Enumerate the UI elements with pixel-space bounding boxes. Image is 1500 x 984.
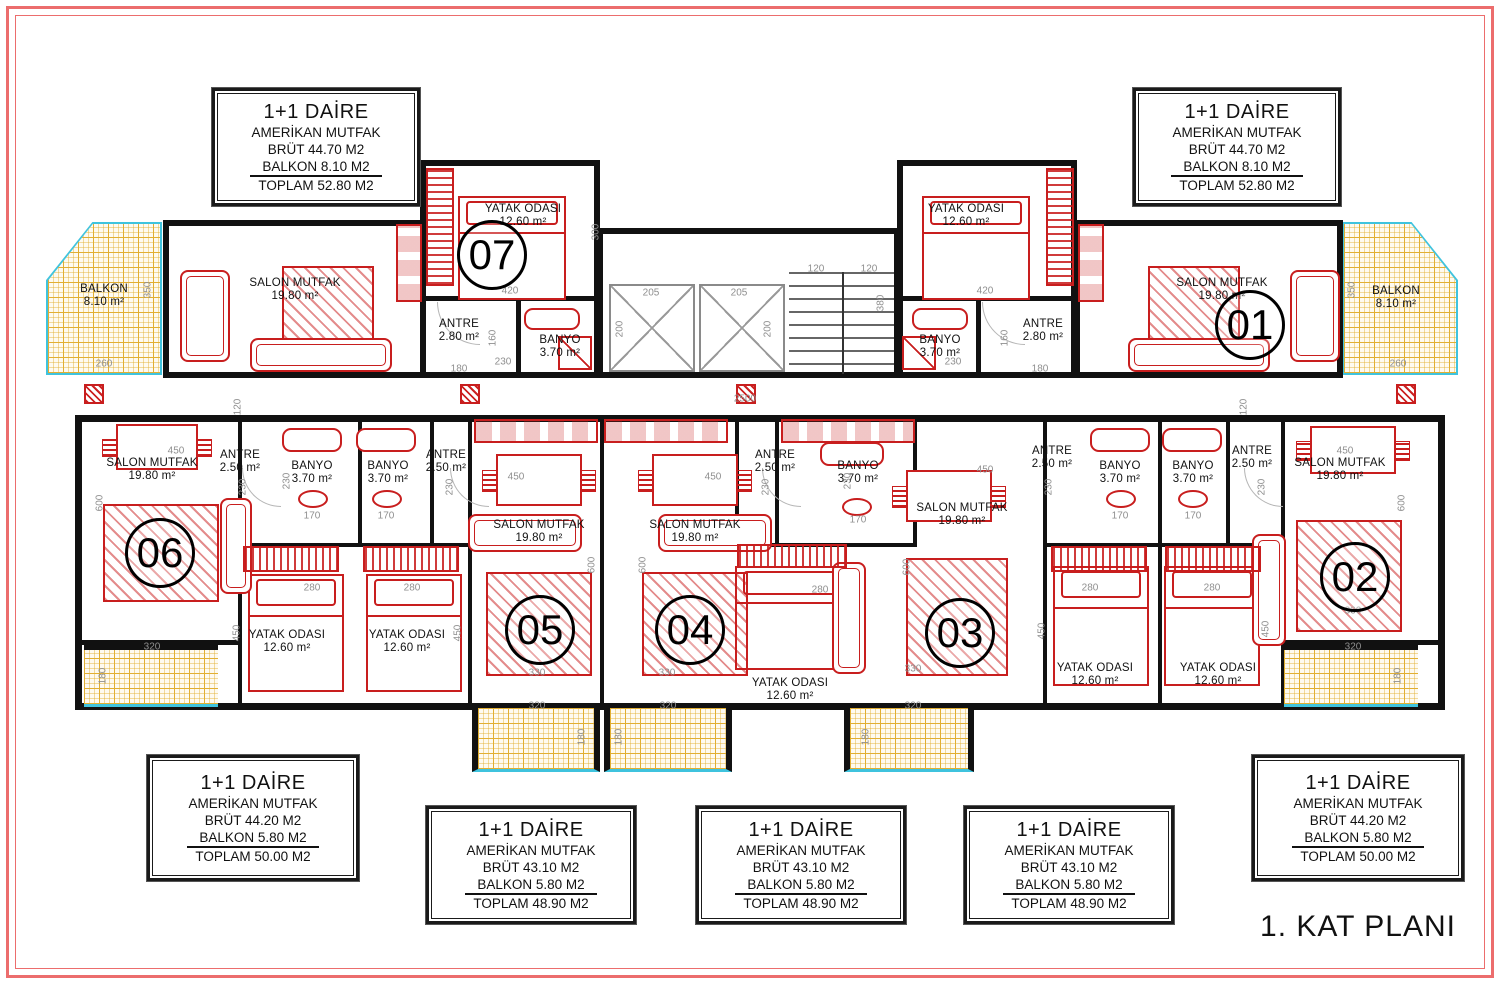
room-label: YATAK ODASI12.60 m²: [752, 677, 828, 703]
dimension-label: 120: [808, 264, 825, 275]
dimension-label: 170: [378, 511, 395, 522]
room-label: BANYO3.70 m²: [367, 460, 408, 486]
bathtub-fixture: [1162, 428, 1222, 452]
dimension-label: 280: [304, 583, 321, 594]
dimension-label: 330: [659, 668, 676, 679]
dimension-label: 200: [763, 321, 774, 338]
room-label: ANTRE2.80 m²: [439, 318, 479, 344]
room-label: ANTRE2.50 m²: [426, 449, 466, 475]
room-label: SALON MUTFAK19.80 m²: [493, 519, 584, 545]
bathtub-fixture: [524, 308, 580, 330]
dimension-label: 180: [98, 668, 109, 685]
sofa-furniture: [250, 338, 392, 372]
room-label: ANTRE2.80 m²: [1023, 318, 1063, 344]
dimension-label: 170: [1112, 511, 1129, 522]
dimension-label: 180: [861, 729, 872, 746]
column-marker: [84, 384, 104, 404]
dimension-label: 320: [144, 642, 161, 653]
wardrobe-furniture: [1046, 168, 1074, 286]
dimension-label: 300: [591, 224, 602, 241]
dimension-label: 120: [233, 399, 244, 416]
info-box-brut: BRÜT 44.70 M2: [1189, 141, 1286, 158]
dimension-label: 330: [905, 664, 922, 675]
dimension-label: 160: [1000, 330, 1011, 347]
wall: [1226, 415, 1230, 545]
dimension-label: 450: [453, 625, 464, 642]
dimension-label: 600: [95, 495, 106, 512]
dimension-label: 180: [1032, 364, 1049, 375]
dimension-label: 600: [587, 557, 598, 574]
info-box-brut: BRÜT 44.20 M2: [1310, 812, 1407, 829]
wall: [516, 300, 521, 378]
info-box-balkon: BALKON 5.80 M2: [747, 876, 854, 893]
info-box-toplam: TOPLAM 48.90 M2: [1003, 893, 1134, 912]
dimension-label: 280: [1082, 583, 1099, 594]
sink-fixture: [298, 490, 328, 508]
room-label: YATAK ODASI12.60 m²: [369, 629, 445, 655]
wardrobe-furniture: [737, 544, 847, 568]
info-box-title: 1+1 DAİRE: [1184, 101, 1289, 124]
kitchen-counter: [604, 419, 728, 443]
dimension-label: 170: [304, 511, 321, 522]
room-label: SALON MUTFAK19.80 m²: [649, 519, 740, 545]
info-box-title: 1+1 DAİRE: [200, 772, 305, 795]
sofa-furniture: [832, 562, 866, 674]
dimension-label: 260: [96, 359, 113, 370]
room-label: BANYO3.70 m²: [291, 460, 332, 486]
room-label: ANTRE2.50 m²: [1032, 445, 1072, 471]
unit-circle-02: 02: [1320, 542, 1390, 612]
bathtub-fixture: [282, 428, 342, 452]
sink-fixture: [1178, 490, 1208, 508]
bed-furniture: [735, 566, 847, 670]
dimension-label: 280: [812, 585, 829, 596]
room-label: ANTRE2.50 m²: [220, 449, 260, 475]
dimension-label: 450: [977, 465, 994, 476]
info-box-brut: BRÜT 43.10 M2: [753, 859, 850, 876]
sofa-furniture: [180, 270, 230, 362]
room-label: BANYO3.70 m²: [539, 334, 580, 360]
info-box-brut: BRÜT 44.20 M2: [205, 812, 302, 829]
wall: [468, 415, 472, 708]
info-box-title: 1+1 DAİRE: [1305, 772, 1410, 795]
unit-circle-04: 04: [655, 595, 725, 665]
wardrobe-furniture: [363, 546, 459, 572]
room-label: SALON MUTFAK19.80 m²: [249, 277, 340, 303]
info-box-kitchen: AMERİKAN MUTFAK: [251, 124, 380, 141]
unit-circle-03: 03: [925, 598, 995, 668]
info-box-kitchen: AMERİKAN MUTFAK: [466, 842, 595, 859]
room-label: YATAK ODASI12.60 m²: [1057, 662, 1133, 688]
dimension-label: 450: [1261, 621, 1272, 638]
room-label: SALON MUTFAK19.80 m²: [1294, 457, 1385, 483]
staircase: [789, 272, 894, 374]
wardrobe-furniture: [1165, 546, 1261, 572]
dimension-label: 380: [876, 295, 887, 312]
dimension-label: 320: [529, 701, 546, 712]
plan-title: 1. KAT PLANI: [1260, 910, 1456, 944]
dimension-label: 450: [508, 472, 525, 483]
info-box-balkon: BALKON 8.10 M2: [1183, 158, 1290, 175]
room-label: ANTRE2.50 m²: [1232, 445, 1272, 471]
room-label: BALKON8.10 m²: [80, 283, 128, 309]
info-box-title: 1+1 DAİRE: [263, 101, 368, 124]
wall: [1158, 415, 1162, 708]
dimension-label: 180: [1393, 668, 1404, 685]
dimension-label: 280: [404, 583, 421, 594]
dimension-label: 260: [1390, 359, 1407, 370]
dimension-label: 450: [1337, 446, 1354, 457]
info-box-title: 1+1 DAİRE: [478, 819, 583, 842]
column-marker: [460, 384, 480, 404]
floor-plan: BALKON8.10 m²SALON MUTFAK19.80 m²YATAK O…: [0, 0, 1500, 984]
info-box-kitchen: AMERİKAN MUTFAK: [188, 795, 317, 812]
dimension-label: 450: [232, 625, 243, 642]
dimension-label: 170: [850, 515, 867, 526]
dimension-label: 420: [977, 286, 994, 297]
room-label: ANTRE2.50 m²: [755, 449, 795, 475]
kitchen-counter: [1078, 224, 1104, 302]
dimension-label: 350: [143, 282, 154, 299]
wall: [600, 415, 604, 703]
dimension-label: 600: [638, 557, 649, 574]
sink-fixture: [1106, 490, 1136, 508]
dimension-label: 230: [238, 479, 249, 496]
dimension-label: 450: [705, 472, 722, 483]
info-box-balkon: BALKON 5.80 M2: [199, 829, 306, 846]
info-box-kitchen: AMERİKAN MUTFAK: [1293, 795, 1422, 812]
bathtub-fixture: [1090, 428, 1150, 452]
column-marker: [1396, 384, 1416, 404]
room-label: YATAK ODASI12.60 m²: [249, 629, 325, 655]
info-box-balkon: BALKON 8.10 M2: [262, 158, 369, 175]
info-box-title: 1+1 DAİRE: [748, 819, 853, 842]
dimension-label: 180: [577, 729, 588, 746]
dimension-label: 230: [945, 357, 962, 368]
dimension-label: 230: [1044, 479, 1055, 496]
room-label: YATAK ODASI12.60 m²: [928, 203, 1004, 229]
dimension-label: 230: [761, 479, 772, 496]
wall: [976, 300, 981, 378]
info-box-bottom-mid: 1+1 DAİRE AMERİKAN MUTFAK BRÜT 43.10 M2 …: [696, 806, 906, 924]
kitchen-counter: [474, 419, 598, 443]
dining-table-furniture: [652, 454, 738, 506]
dimension-label: 120: [861, 264, 878, 275]
info-box-kitchen: AMERİKAN MUTFAK: [736, 842, 865, 859]
info-box-brut: BRÜT 44.70 M2: [268, 141, 365, 158]
dimension-label: 230: [1257, 479, 1268, 496]
kitchen-counter: [396, 224, 422, 302]
info-box-toplam: TOPLAM 52.80 M2: [250, 175, 381, 194]
sofa-furniture: [1290, 270, 1340, 362]
unit-circle-07: 07: [457, 220, 527, 290]
info-box-top-right: 1+1 DAİRE AMERİKAN MUTFAK BRÜT 44.70 M2 …: [1133, 88, 1341, 206]
info-box-balkon: BALKON 5.80 M2: [1015, 876, 1122, 893]
dimension-label: 230: [843, 473, 854, 490]
info-box-brut: BRÜT 43.10 M2: [1021, 859, 1118, 876]
kitchen-counter: [781, 419, 915, 443]
dimension-label: 600: [902, 559, 913, 576]
dimension-label: 330: [529, 668, 546, 679]
bathtub-fixture: [912, 308, 968, 330]
info-box-kitchen: AMERİKAN MUTFAK: [1004, 842, 1133, 859]
info-box-balkon: BALKON 5.80 M2: [1304, 829, 1411, 846]
info-box-title: 1+1 DAİRE: [1016, 819, 1121, 842]
wall: [430, 415, 434, 545]
room-label: SALON MUTFAK19.80 m²: [916, 502, 1007, 528]
info-box-brut: BRÜT 43.10 M2: [483, 859, 580, 876]
dimension-label: 2500: [734, 394, 756, 405]
room-label: BANYO3.70 m²: [1099, 460, 1140, 486]
wardrobe-furniture: [243, 546, 339, 572]
dimension-label: 160: [488, 330, 499, 347]
sink-fixture: [842, 498, 872, 516]
room-label: BANYO3.70 m²: [1172, 460, 1213, 486]
dimension-label: 450: [1037, 623, 1048, 640]
info-box-bottom-mid-right: 1+1 DAİRE AMERİKAN MUTFAK BRÜT 43.10 M2 …: [964, 806, 1174, 924]
dimension-label: 230: [495, 357, 512, 368]
dimension-label: 320: [905, 701, 922, 712]
info-box-bottom-mid-left: 1+1 DAİRE AMERİKAN MUTFAK BRÜT 43.10 M2 …: [426, 806, 636, 924]
sink-fixture: [372, 490, 402, 508]
dimension-label: 205: [731, 288, 748, 299]
dimension-label: 230: [445, 479, 456, 496]
info-box-toplam: TOPLAM 48.90 M2: [735, 893, 866, 912]
wardrobe-furniture: [1051, 546, 1147, 572]
room-label: SALON MUTFAK19.80 m²: [106, 457, 197, 483]
dimension-label: 205: [643, 288, 660, 299]
dimension-label: 280: [1204, 583, 1221, 594]
dimension-label: 350: [1347, 282, 1358, 299]
info-box-top-left: 1+1 DAİRE AMERİKAN MUTFAK BRÜT 44.70 M2 …: [212, 88, 420, 206]
info-box-balkon: BALKON 5.80 M2: [477, 876, 584, 893]
dimension-label: 320: [1345, 642, 1362, 653]
unit-circle-05: 05: [505, 595, 575, 665]
wardrobe-furniture: [426, 168, 454, 286]
info-box-bottom-left: 1+1 DAİRE AMERİKAN MUTFAK BRÜT 44.20 M2 …: [147, 755, 359, 881]
dimension-label: 320: [660, 701, 677, 712]
info-box-toplam: TOPLAM 52.80 M2: [1171, 175, 1302, 194]
info-box-bottom-right: 1+1 DAİRE AMERİKAN MUTFAK BRÜT 44.20 M2 …: [1252, 755, 1464, 881]
info-box-toplam: TOPLAM 50.00 M2: [1292, 846, 1423, 865]
room-label: BALKON8.10 m²: [1372, 285, 1420, 311]
dimension-label: 180: [451, 364, 468, 375]
dimension-label: 180: [614, 729, 625, 746]
info-box-kitchen: AMERİKAN MUTFAK: [1172, 124, 1301, 141]
dimension-label: 170: [1185, 511, 1202, 522]
dimension-label: 600: [1397, 495, 1408, 512]
dimension-label: 230: [282, 473, 293, 490]
dimension-label: 200: [615, 321, 626, 338]
info-box-toplam: TOPLAM 50.00 M2: [187, 846, 318, 865]
unit-circle-06: 06: [125, 518, 195, 588]
info-box-toplam: TOPLAM 48.90 M2: [465, 893, 596, 912]
dimension-label: 120: [1239, 399, 1250, 416]
dimension-label: 450: [168, 446, 185, 457]
bathtub-fixture: [356, 428, 416, 452]
room-label: YATAK ODASI12.60 m²: [1180, 662, 1256, 688]
unit-circle-01: 01: [1215, 290, 1285, 360]
